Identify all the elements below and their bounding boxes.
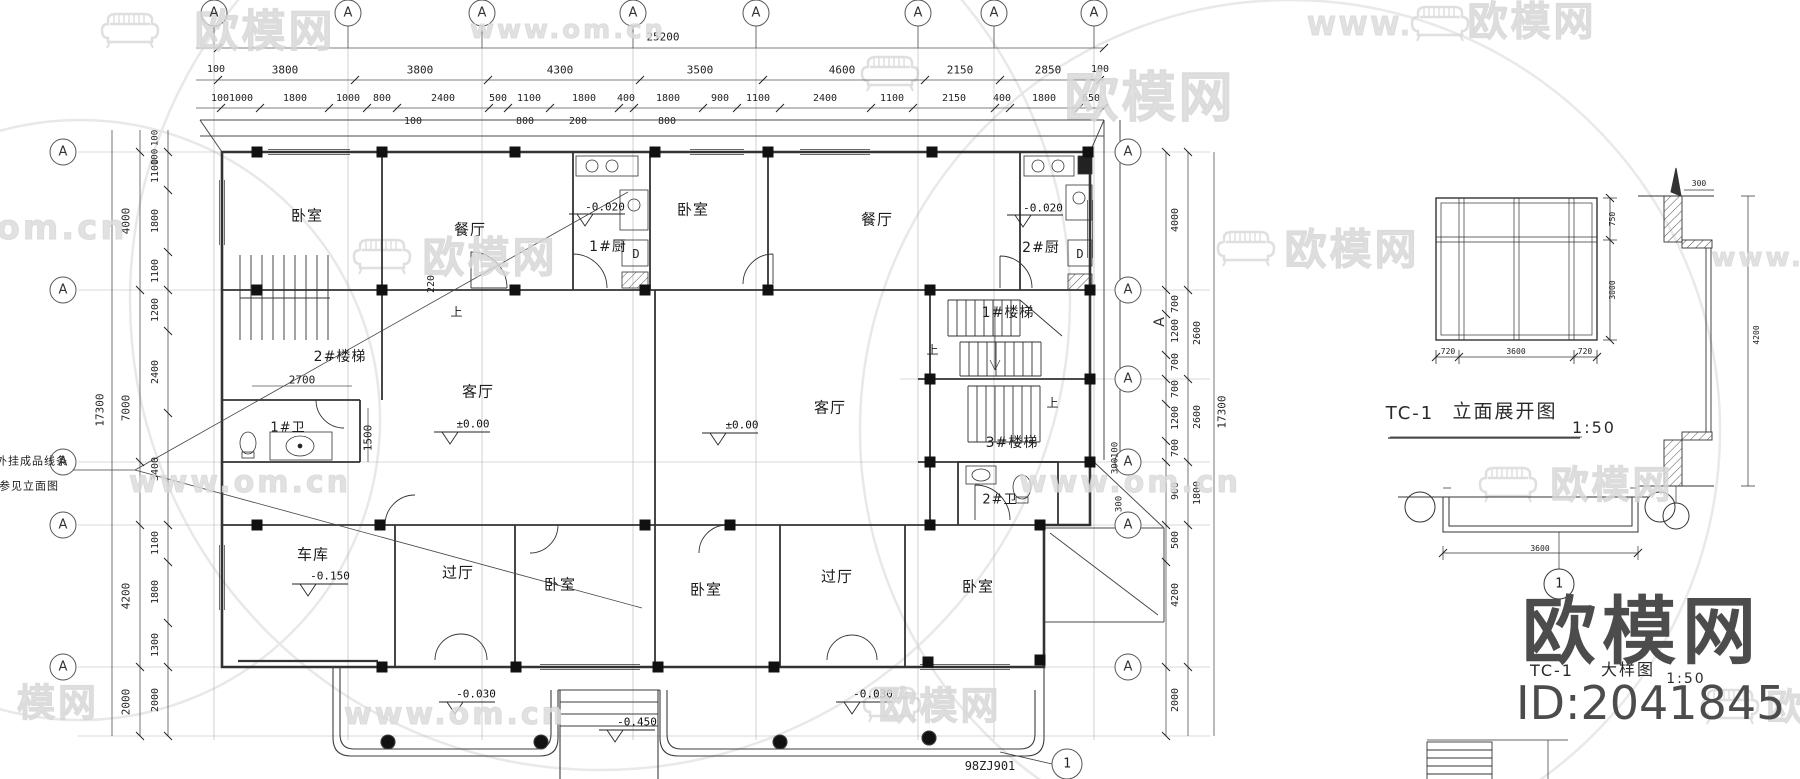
drawing-label: 4600 [829, 65, 856, 76]
drawing-label: 100 [152, 130, 161, 146]
drawing-label: 3600 [1506, 348, 1525, 356]
drawing-label: 4300 [547, 65, 574, 76]
room-label-bedroom: 卧室 [544, 578, 576, 593]
grid-bubble-letter: A [344, 7, 353, 20]
drawing-label: 1000 [336, 94, 360, 104]
grid-bubble-letter: A [990, 7, 999, 20]
drawing-label: 500 [1171, 531, 1181, 549]
grid-bubble-letter: A [478, 7, 487, 20]
drawing-label: 1300 [151, 633, 161, 657]
drawing-label: www.om.cn [129, 468, 351, 498]
drawing-label: D [632, 248, 639, 260]
watermark-model-id: ID:2041845 [1516, 680, 1800, 726]
grid-bubble-letter: A [59, 456, 68, 469]
drawing-label: 100 [211, 94, 229, 104]
drawing-label: 800 [516, 117, 534, 127]
drawing-label: 800 [658, 117, 676, 127]
drawing-label: 1100 [880, 94, 904, 104]
grid-bubble-letter: A [752, 7, 761, 20]
drawing-label: www.o [1711, 245, 1800, 271]
grid-bubble-letter: A [1124, 456, 1133, 469]
level-mark: -0.450 [617, 717, 657, 728]
drawing-label: 1500 [363, 425, 374, 452]
grid-bubble-letter: A [59, 661, 68, 674]
drawing-label: 720 [1441, 348, 1455, 356]
drawing-label: 720 [1578, 348, 1592, 356]
grid-bubble-letter: A [1124, 284, 1133, 297]
drawing-label: 2400 [151, 360, 161, 384]
drawing-label: 模网 [17, 684, 99, 722]
drawing-label: 1200 [151, 298, 161, 322]
drawing-label: 4200 [121, 583, 132, 610]
drawing-label: www.om.cn [470, 17, 666, 43]
drawing-label: 900 [711, 94, 729, 104]
drawing-label: 欧模网 [422, 237, 557, 279]
drawing-label: 2850 [1035, 65, 1062, 76]
room-label-bedroom: 卧室 [677, 203, 709, 218]
grid-bubble-letter: A [1090, 7, 1099, 20]
drawing-label: 上 [926, 344, 939, 356]
drawing-label: 2150 [942, 94, 966, 104]
drawing-label: 700 [1171, 380, 1181, 398]
drawing-label: 1200 [1171, 406, 1181, 430]
room-label-bedroom: 卧室 [690, 583, 722, 598]
drawing-label: 400 [617, 94, 635, 104]
dimension-ticks [136, 44, 1642, 740]
drawing-label: 上 [1046, 397, 1059, 409]
drawing-label: 200 [569, 117, 587, 127]
room-label-hall: 过厅 [442, 566, 474, 581]
drawing-label: 1000 [229, 94, 253, 104]
drawing-label: om.cn [0, 211, 128, 245]
room-label-living: 客厅 [462, 385, 494, 400]
leader-note: 参见立面图 [0, 481, 59, 492]
drawing-label: 3600 [1530, 545, 1549, 553]
drawing-label: 1800 [1032, 94, 1056, 104]
drawing-label: 2700 [289, 375, 316, 386]
room-label-kitchen1: 1#厨 [589, 240, 627, 254]
drawing-label: 1800 [151, 209, 161, 233]
drawing-label: www.om.cn [1019, 468, 1241, 498]
level-mark: ±0.00 [456, 419, 489, 430]
drawing-label: 100 [1112, 442, 1121, 458]
grid-bubble-letter: A [1124, 373, 1133, 386]
drawing-label: 3800 [407, 65, 434, 76]
drawing-label: 100 [404, 117, 422, 127]
elev-scale: 1:50 [1572, 420, 1616, 436]
room-label-kitchen2: 2#厨 [1022, 241, 1060, 255]
drawing-label: 750 [1609, 212, 1617, 226]
drawing-label: 700 [1171, 353, 1181, 371]
room-label-bedroom: 卧室 [291, 209, 323, 224]
walls [222, 152, 1090, 667]
drawing-label: 2000 [151, 688, 161, 712]
drawing-label: 2000 [1171, 688, 1181, 712]
drawing-label: 1100 [151, 259, 161, 283]
drawing-label: 7000 [121, 395, 132, 422]
level-mark: ±0.00 [725, 420, 758, 431]
drawing-label: 2000 [121, 689, 132, 716]
room-label-living: 客厅 [814, 401, 846, 416]
drawing-label: 2600 [1193, 405, 1203, 429]
drawing-label: 100 [207, 65, 225, 75]
detail-louver [1427, 740, 1568, 779]
drawing-label: 1800 [656, 94, 680, 104]
room-label-stair2: 2#楼梯 [314, 350, 367, 364]
drawing-label: 欧模网 [1065, 71, 1236, 125]
grid-bubble-letter: A [1124, 146, 1133, 159]
drawing-label: 1100 [151, 159, 161, 183]
drawing-label: 300 [1692, 180, 1706, 188]
level-marker-triangles [292, 214, 1063, 742]
room-label-garage: 车库 [297, 548, 329, 563]
drawing-label: 1100 [517, 94, 541, 104]
drawing-label: 欧模网 [1468, 2, 1597, 42]
elev-title: 立面展开图 [1452, 403, 1557, 422]
drawing-label: 1100 [151, 531, 161, 555]
drawing-label: 欧模网 [1550, 466, 1673, 504]
grid-bubble-letter: A [914, 7, 923, 20]
drawing-label: 4200 [1753, 325, 1761, 344]
drawing-label: 4200 [1171, 583, 1181, 607]
watermark-arcs [0, 0, 1720, 779]
watermark-site-name: 欧模网 [1522, 595, 1800, 669]
grid-bubble-letter: A [59, 146, 68, 159]
drawing-label: 欧模网 [878, 687, 1001, 725]
drawing-label: 800 [373, 94, 391, 104]
drawing-label: 2400 [431, 94, 455, 104]
section-letter: A [1153, 317, 1167, 327]
drawing-label: 1800 [572, 94, 596, 104]
drawing-label: WWW. [1307, 14, 1413, 40]
grid-bubble-letter: A [210, 7, 219, 20]
drawing-label: 2150 [947, 65, 974, 76]
drawing-label: 欧模网 [1284, 229, 1419, 271]
drawing-label: 700 [1171, 439, 1181, 457]
grid-bubble-letter: A [59, 519, 68, 532]
drawing-label: 1800 [283, 94, 307, 104]
grid-bubble-letter: A [59, 284, 68, 297]
elev-code: TC-1 [1386, 405, 1434, 423]
drawing-label: 1800 [151, 580, 161, 604]
drawing-label: 上 [450, 306, 463, 318]
drawing-label: www.om.cn [344, 700, 566, 730]
room-label-bedroom: 卧室 [962, 580, 994, 595]
level-mark: -0.020 [1023, 203, 1063, 214]
grid-bubble-letter: A [1124, 661, 1133, 674]
drawing-label: 400 [993, 94, 1011, 104]
level-mark: -0.150 [310, 571, 350, 582]
room-label-stair1: 1#楼梯 [982, 306, 1035, 320]
drawing-label: 3000 [1609, 280, 1617, 299]
doors [316, 252, 1032, 660]
room-label-bath2: 2#卫 [982, 494, 1017, 507]
drawing-label: 2600 [1193, 321, 1203, 345]
drawing-label: 3500 [687, 65, 714, 76]
drawing-label: 700 [1171, 295, 1181, 313]
drawing-label: 1200 [1171, 319, 1181, 343]
room-label-dining: 餐厅 [861, 213, 893, 228]
grid-bubble-letter: A [629, 7, 638, 20]
drawing-label: D [1076, 248, 1083, 260]
drawing-label: 3800 [272, 65, 299, 76]
room-label-hall: 过厅 [821, 570, 853, 585]
level-mark: -0.020 [585, 202, 625, 213]
dim-left-overall: 17300 [95, 393, 106, 426]
drawing-label: 1100 [746, 94, 770, 104]
room-label-bath1: 1#卫 [270, 422, 305, 435]
ref-standard: 98ZJ901 [965, 760, 1016, 772]
cad-floorplan-screenshot: 2520010038003800430035004600215028501001… [0, 0, 1800, 779]
drawing-label: 4000 [1171, 208, 1181, 232]
drawing-label: 2400 [813, 94, 837, 104]
drawing-label: 500 [489, 94, 507, 104]
room-label-stair3: 3#楼梯 [986, 436, 1039, 450]
dim-right-overall: 17300 [1217, 395, 1228, 428]
detail-bubble-1: 1 [1063, 758, 1071, 771]
grid-bubble-letter: A [1124, 519, 1133, 532]
